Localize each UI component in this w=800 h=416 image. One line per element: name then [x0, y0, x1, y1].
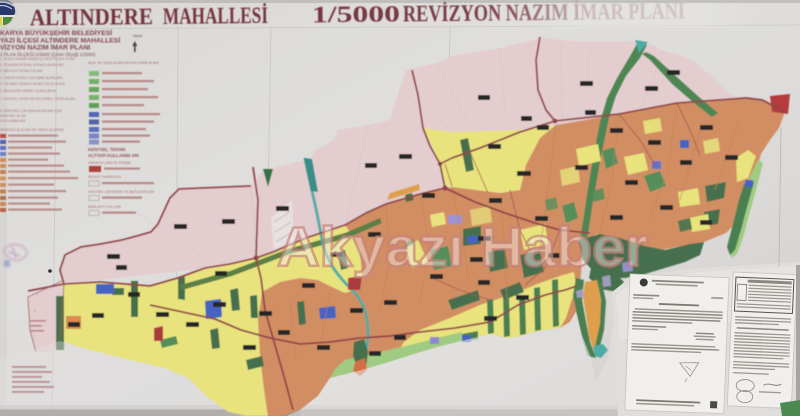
svg-text:Akyazı Haber: Akyazı Haber — [277, 215, 648, 278]
svg-text:MAHALLESİ: MAHALLESİ — [163, 3, 268, 30]
svg-text:c: c — [34, 309, 36, 313]
svg-text:1/5000: 1/5000 — [312, 2, 400, 29]
svg-text:1: 1 — [36, 292, 38, 296]
